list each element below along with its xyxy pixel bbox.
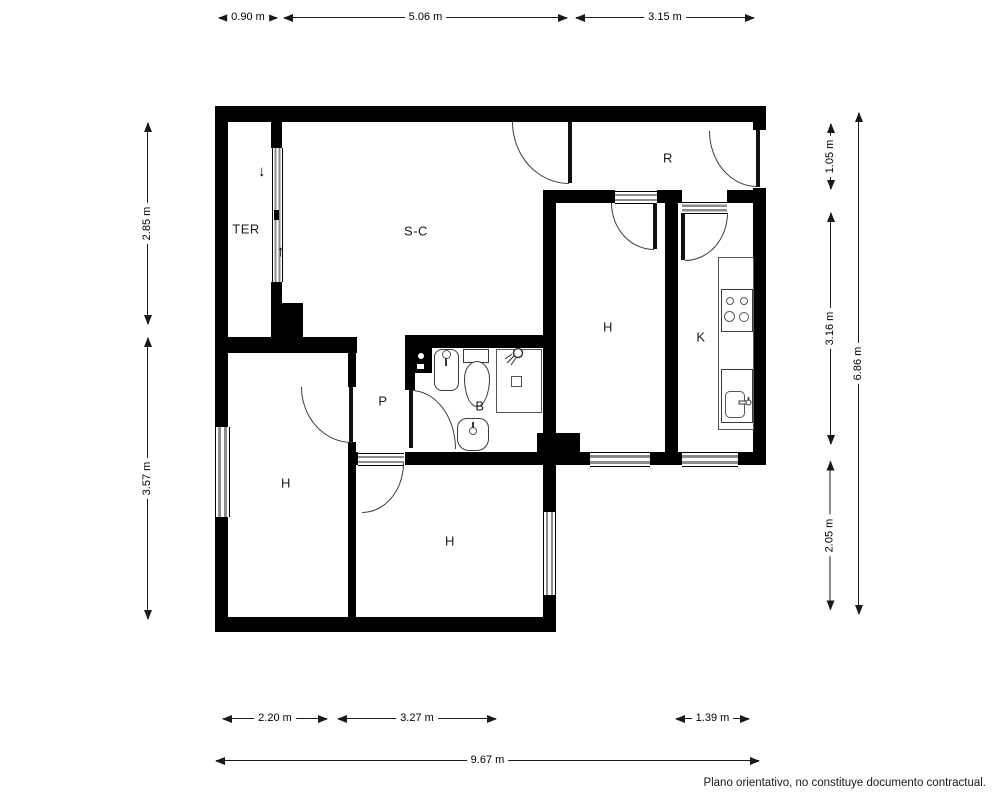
dimension-top-2: 3.15 m <box>575 11 755 24</box>
shower-drain-icon <box>511 376 522 387</box>
wall <box>738 452 766 465</box>
wall <box>657 190 682 203</box>
wall <box>537 433 580 452</box>
floor-plan-canvas: ↓ ↑ TER S-C R H K P B H H 0.90 m 5.06 m … <box>0 0 1000 800</box>
bidet-faucet <box>469 427 477 435</box>
wall <box>543 190 615 203</box>
arrowhead-right-icon <box>826 461 834 471</box>
wall <box>215 106 766 122</box>
wall <box>543 203 556 452</box>
terrace-arrow-up-icon: ↑ <box>277 244 285 259</box>
dimension-bottom-total: 9.67 m <box>215 754 760 767</box>
water-heater-vent <box>417 364 424 369</box>
arrowhead-right-icon <box>143 337 151 347</box>
window <box>215 427 230 517</box>
arrowhead-left-icon <box>826 180 834 190</box>
dimension-top-0: 0.90 m <box>218 11 278 24</box>
door-swing-arc <box>685 213 728 261</box>
stove-icon <box>721 289 753 332</box>
door-swing-arc <box>301 387 352 443</box>
dimension-right-0: 1.05 m <box>824 123 837 190</box>
terrace-arrow-down-icon: ↓ <box>258 164 266 179</box>
arrowhead-left-icon <box>337 715 347 723</box>
dimension-bottom-1: 3.27 m <box>337 712 497 725</box>
window <box>543 512 556 595</box>
wall <box>348 452 358 465</box>
arrowhead-right-icon <box>826 212 834 222</box>
arrowhead-right-icon <box>558 14 568 22</box>
dimension-bottom-0: 2.20 m <box>222 712 328 725</box>
water-heater-dial <box>418 353 424 359</box>
kitchen-faucet-icon <box>738 395 752 409</box>
dimension-left-1: 3.57 m <box>141 337 154 620</box>
arrowhead-right-icon <box>745 14 755 22</box>
arrowhead-left-icon <box>283 14 293 22</box>
wall <box>271 282 282 339</box>
arrowhead-left-icon <box>143 315 151 325</box>
room-label-bedroom-bottom: H <box>445 534 455 549</box>
arrowhead-right-icon <box>826 123 834 133</box>
wall <box>348 442 356 632</box>
arrowhead-right-icon <box>854 112 862 122</box>
dimension-left-0: 2.85 m <box>141 122 154 325</box>
burner-icon <box>724 311 735 322</box>
arrowhead-left-icon <box>575 14 585 22</box>
wall <box>215 617 555 632</box>
dimension-right-total: 6.86 m <box>852 112 865 615</box>
burner-icon <box>726 297 734 305</box>
arrowhead-left-icon <box>826 435 834 445</box>
shower-head-icon <box>501 345 527 367</box>
arrowhead-left-icon <box>222 715 232 723</box>
door-swing-arc <box>611 203 654 250</box>
door-swing-arc <box>411 390 456 449</box>
door-swing-arc <box>512 122 569 184</box>
arrowhead-right-icon <box>268 14 278 22</box>
door-leaf <box>349 387 353 442</box>
wall <box>650 452 682 465</box>
window <box>590 452 650 467</box>
door-swing-arc <box>362 463 404 513</box>
room-label-hall: R <box>663 151 673 166</box>
wall <box>543 465 556 512</box>
arrowhead-left-icon <box>215 757 225 765</box>
arrowhead-left-icon <box>675 715 685 723</box>
bidet-stem <box>472 422 474 428</box>
wall <box>271 122 282 148</box>
arrowhead-left-icon <box>143 610 151 620</box>
dimension-top-1: 5.06 m <box>283 11 568 24</box>
wall <box>753 188 766 465</box>
wall <box>665 203 678 465</box>
dimension-right-2: 2.05 m <box>824 461 837 611</box>
wall <box>215 122 228 427</box>
wall <box>215 517 228 632</box>
room-label-living: S-C <box>404 224 428 239</box>
faucet-stem <box>445 358 447 366</box>
wall <box>348 353 356 387</box>
dimension-bottom-2: 1.39 m <box>675 712 750 725</box>
disclaimer-text: Plano orientativo, no constituye documen… <box>703 777 986 789</box>
wall <box>215 337 357 353</box>
arrowhead-left-icon <box>826 601 834 611</box>
burner-icon <box>740 297 748 305</box>
wall <box>405 452 580 465</box>
arrowhead-right-icon <box>143 122 151 132</box>
wall <box>543 595 556 632</box>
door-leaf <box>653 203 657 249</box>
arrowhead-left-icon <box>854 605 862 615</box>
door-leaf <box>568 122 572 183</box>
window-mullion <box>274 210 279 220</box>
water-heater-icon <box>411 347 432 373</box>
arrowhead-right-icon <box>318 715 328 723</box>
door-swing-arc <box>709 131 757 187</box>
room-label-bedroom-right: H <box>603 320 613 335</box>
room-label-bathroom: B <box>475 399 484 414</box>
wall <box>753 122 766 130</box>
dimension-right-1: 3.16 m <box>824 212 837 445</box>
room-label-terrace: TER <box>232 222 260 237</box>
entrance-door-leaf <box>756 130 760 187</box>
burner-icon <box>739 312 749 322</box>
room-label-kitchen: K <box>696 330 705 345</box>
room-label-bedroom-left: H <box>281 476 291 491</box>
door-leaf <box>409 390 413 448</box>
arrowhead-right-icon <box>487 715 497 723</box>
arrowhead-right-icon <box>750 757 760 765</box>
wall <box>727 190 766 203</box>
arrowhead-right-icon <box>740 715 750 723</box>
room-label-corridor: P <box>378 394 387 409</box>
door-leaf <box>681 213 685 260</box>
window <box>682 452 738 467</box>
